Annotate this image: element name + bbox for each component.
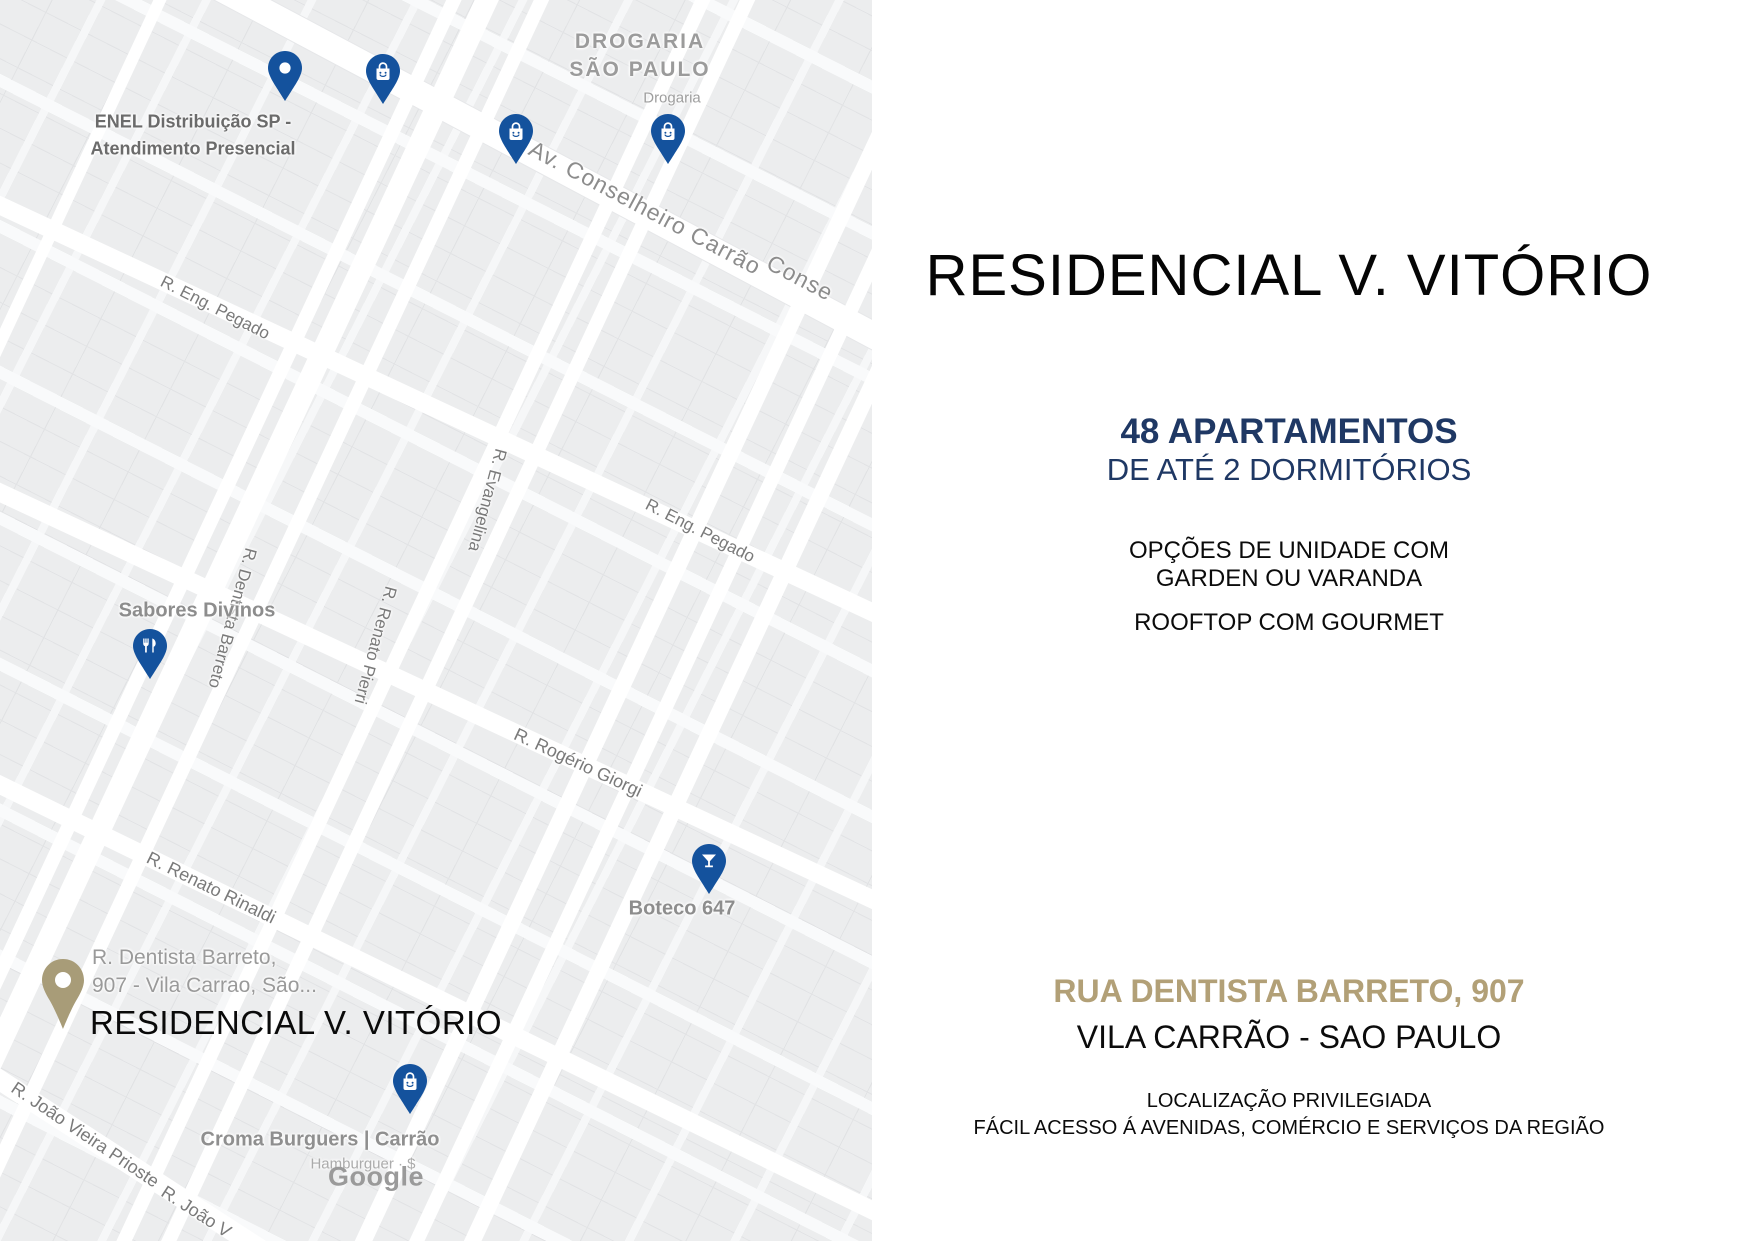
street-label-av-conselheiro: Av. Conselheiro Carrão [524, 135, 765, 280]
feature-rooftop: ROOFTOP COM GOURMET [872, 609, 1706, 637]
location-highlight-line1: LOCALIZAÇÃO PRIVILEGIADA [872, 1090, 1706, 1113]
feature-unit-options-line1: OPÇÕES DE UNIDADE COM [872, 537, 1706, 565]
cross-street [0, 0, 603, 1240]
location-highlight-line2: FÁCIL ACESSO Á AVENIDAS, COMÉRCIO E SERV… [872, 1117, 1706, 1140]
poi-sublabel-drogaria: Drogaria [643, 90, 701, 107]
shopping-map-pin-1[interactable] [364, 53, 402, 105]
shopping-map-pin-2[interactable] [497, 113, 535, 165]
street-label-joao-vieira-prioste: R. João Vieira Prioste [7, 1078, 163, 1193]
google-map[interactable]: DROGARIA SÃO PAULO Drogaria ENEL Distrib… [0, 0, 872, 1241]
shopping-bag-pin-icon [497, 113, 535, 165]
page-title: RESIDENCIAL V. VITÓRIO [872, 242, 1706, 309]
map-label-residencial-v-vitorio: RESIDENCIAL V. VITÓRIO [90, 1004, 502, 1042]
cocktail-pin-icon [690, 843, 728, 895]
shopping-map-pin-3[interactable] [649, 113, 687, 165]
shopping-bag-pin-icon [649, 113, 687, 165]
address-label-line2: 907 - Vila Carrao, São... [92, 974, 317, 998]
info-panel: RESIDENCIAL V. VITÓRIO 48 APARTAMENTOS D… [872, 0, 1754, 1241]
page: DROGARIA SÃO PAULO Drogaria ENEL Distrib… [0, 0, 1754, 1241]
restaurant-pin-icon [131, 628, 169, 680]
restaurant-map-pin[interactable] [131, 628, 169, 680]
poi-label-sabores-divinos[interactable]: Sabores Divinos [119, 600, 276, 623]
shopping-map-pin-4[interactable] [391, 1063, 429, 1115]
street-label-renato-rinaldi: R. Renato Rinaldi [143, 848, 279, 929]
address-street: RUA DENTISTA BARRETO, 907 [872, 973, 1706, 1010]
poi-label-enel-line2[interactable]: Atendimento Presencial [90, 139, 295, 160]
property-map-pin[interactable] [40, 958, 86, 1030]
google-logo: Google [328, 1162, 424, 1193]
poi-label-drogaria[interactable]: DROGARIA [575, 30, 705, 54]
street-label-eng-pegado-1: R. Eng. Pegado [157, 272, 273, 344]
dorms-subtitle: DE ATÉ 2 DORMITÓRIOS [872, 452, 1706, 488]
address-district: VILA CARRÃO - SAO PAULO [872, 1019, 1706, 1056]
poi-label-croma-burguers[interactable]: Croma Burguers | Carrão [201, 1129, 440, 1152]
shopping-bag-pin-icon [364, 53, 402, 105]
poi-label-boteco-647[interactable]: Boteco 647 [629, 898, 736, 921]
enel-map-pin[interactable] [266, 50, 304, 102]
poi-label-sao-paulo[interactable]: SÃO PAULO [569, 58, 710, 82]
location-pin-icon [266, 50, 304, 102]
feature-unit-options-line2: GARDEN OU VARANDA [872, 565, 1706, 593]
property-pin-icon [40, 958, 86, 1030]
address-label-line1: R. Dentista Barreto, [92, 946, 276, 970]
shopping-bag-pin-icon [391, 1063, 429, 1115]
poi-label-enel-line1[interactable]: ENEL Distribuição SP - [95, 112, 291, 133]
cocktail-map-pin[interactable] [690, 843, 728, 895]
apartments-count: 48 APARTAMENTOS [872, 412, 1706, 452]
